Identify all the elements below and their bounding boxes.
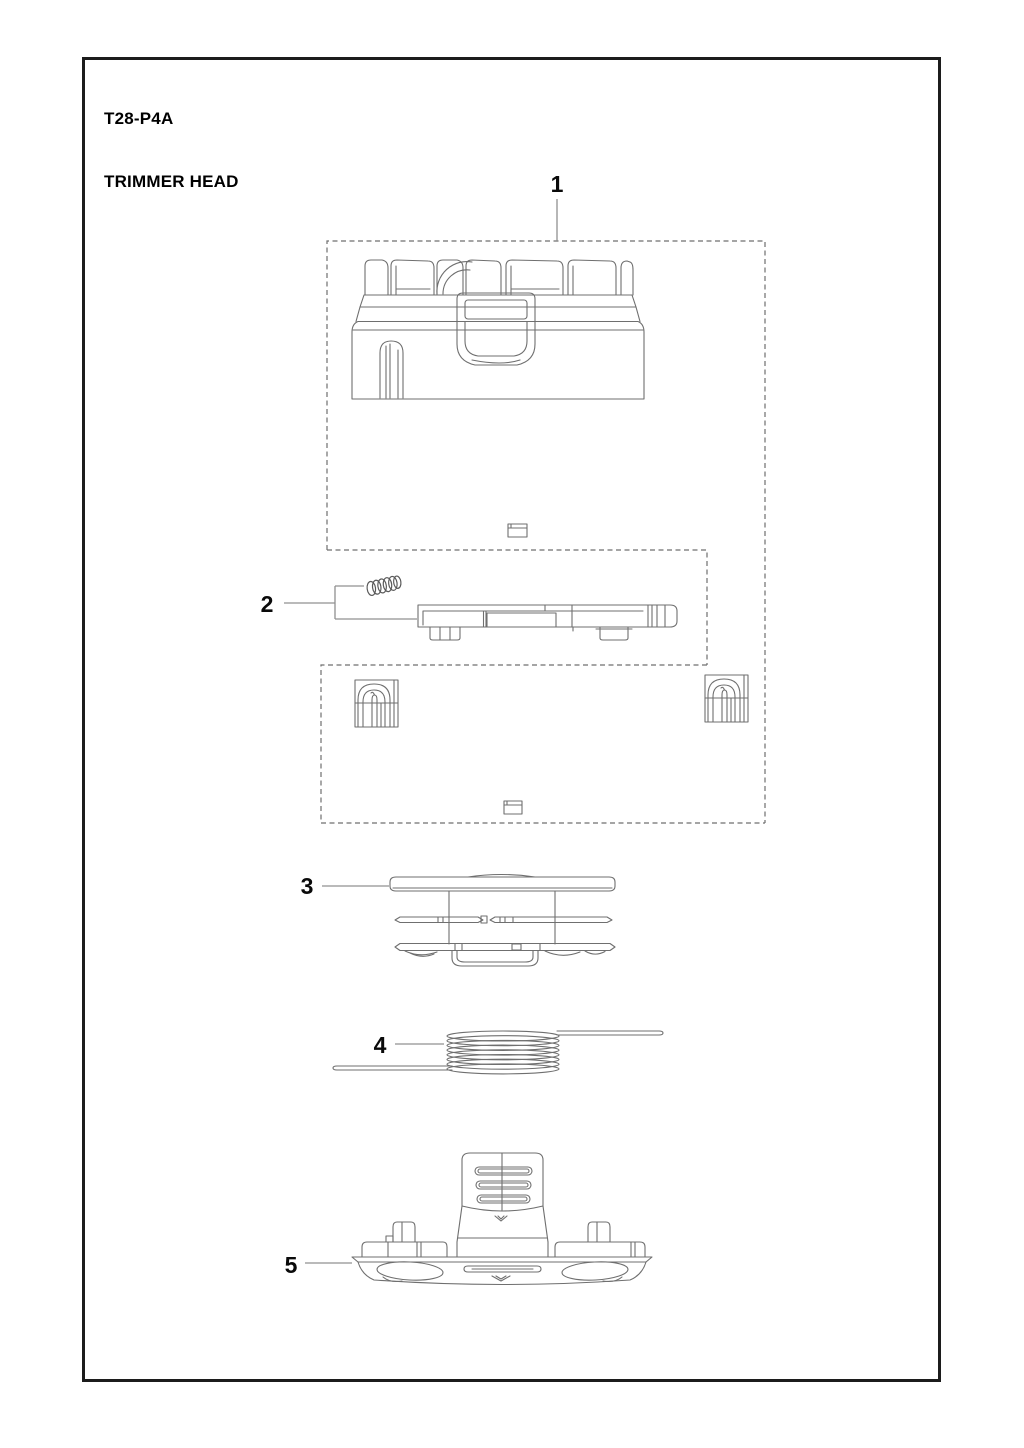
parts-diagram: 1 2 3 4 5 xyxy=(0,0,1024,1448)
callout-5-label: 5 xyxy=(285,1252,298,1278)
part2-plate-drawing xyxy=(418,605,677,640)
part3-spool-drawing xyxy=(390,875,615,967)
callout-1-label: 1 xyxy=(551,171,564,197)
lower-clip-drawing xyxy=(504,801,522,814)
part2-spring-drawing xyxy=(366,575,402,595)
eyelet-right-drawing xyxy=(705,675,748,722)
dashed-group-boxes xyxy=(321,241,765,823)
eyelet-left-drawing xyxy=(355,680,398,727)
callout-part3: 3 xyxy=(301,873,389,899)
parts-catalog-page: T28-P4A TRIMMER HEAD xyxy=(0,0,1024,1448)
callout-2-label: 2 xyxy=(261,591,274,617)
callout-part1: 1 xyxy=(551,171,564,241)
callout-4-label: 4 xyxy=(374,1032,387,1058)
callout-part4: 4 xyxy=(374,1032,444,1058)
part5-base-drawing xyxy=(352,1153,652,1285)
part1-cover-drawing xyxy=(352,260,644,399)
part1-clip-drawing xyxy=(508,524,527,537)
dashed-box-part2 xyxy=(327,550,707,665)
callout-part5: 5 xyxy=(285,1252,352,1278)
callout-2-leader-line xyxy=(284,586,417,619)
dashed-box-lower-group xyxy=(321,665,765,823)
dashed-box-part1 xyxy=(327,241,765,823)
callout-3-label: 3 xyxy=(301,873,314,899)
